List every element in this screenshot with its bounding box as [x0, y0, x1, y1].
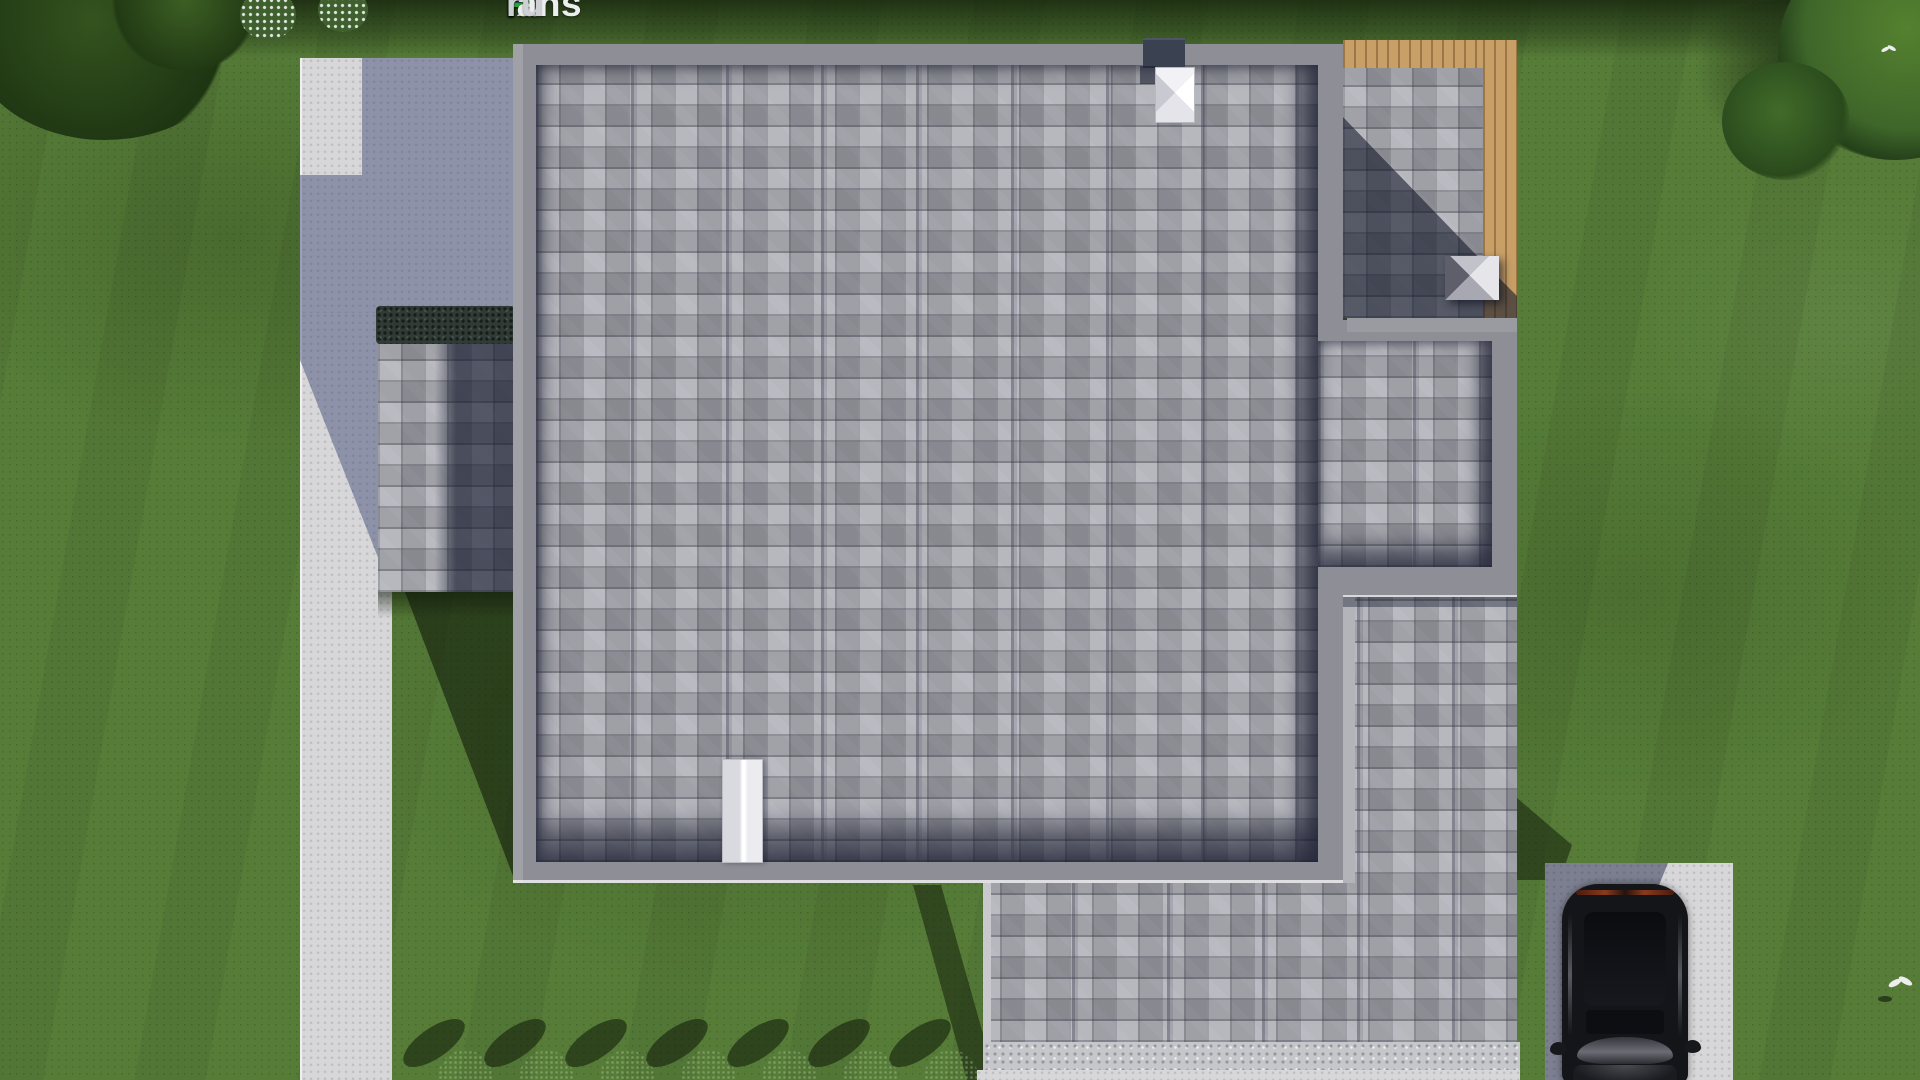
- garden-bush: [1722, 62, 1850, 180]
- car-windshield: [1577, 1037, 1673, 1064]
- car-right-body-highlight: [1678, 914, 1682, 1036]
- black-suv-car: [1562, 884, 1688, 1080]
- car-right-mirror: [1684, 1040, 1701, 1053]
- car-hood: [1573, 1065, 1677, 1080]
- gravel-path: [983, 1042, 1520, 1070]
- gray-roof-vent: [1445, 256, 1499, 300]
- bay-parapet-bottom: [1343, 567, 1517, 597]
- white-bird-on-lawn: [1888, 974, 1914, 994]
- main-roof-field: [536, 65, 1318, 862]
- main-roof-panel-seams: [536, 65, 1318, 862]
- car-sunroof: [1586, 1010, 1664, 1034]
- left-annex-hedge: [376, 306, 515, 344]
- bay-roof-field: [1318, 341, 1492, 567]
- bottom-curb: [977, 1070, 1520, 1080]
- car-left-body-highlight: [1568, 914, 1572, 1036]
- car-left-mirror: [1550, 1042, 1567, 1055]
- main-roof: [513, 44, 1343, 883]
- white-skylight: [722, 759, 763, 863]
- bird-shadow: [1878, 996, 1892, 1002]
- main-roof-parapet-highlight: [513, 44, 523, 883]
- wing-top-shadow: [1343, 597, 1517, 607]
- concrete-pad: [300, 58, 513, 313]
- white-chimney: [1155, 67, 1195, 123]
- bay-panel-seams: [1318, 341, 1492, 567]
- dark-chimney: [1143, 38, 1185, 68]
- watermark-part: ru: [506, 0, 544, 25]
- wing-upper-left-parapet: [1343, 597, 1355, 883]
- annex-parapet-bottom: [1347, 318, 1517, 332]
- dark-chimney-shadow: [1140, 66, 1156, 84]
- aerial-house-render: FixPlans.ru: [0, 0, 1920, 1080]
- white-bird-in-tree: [1881, 44, 1897, 56]
- left-annex-drop-shadow: [378, 592, 513, 618]
- car-taillight-bar: [1576, 890, 1674, 895]
- left-annex-roof-shadow: [378, 344, 513, 592]
- bay-parapet-right: [1492, 320, 1517, 597]
- car-roof-glass: [1584, 912, 1666, 1006]
